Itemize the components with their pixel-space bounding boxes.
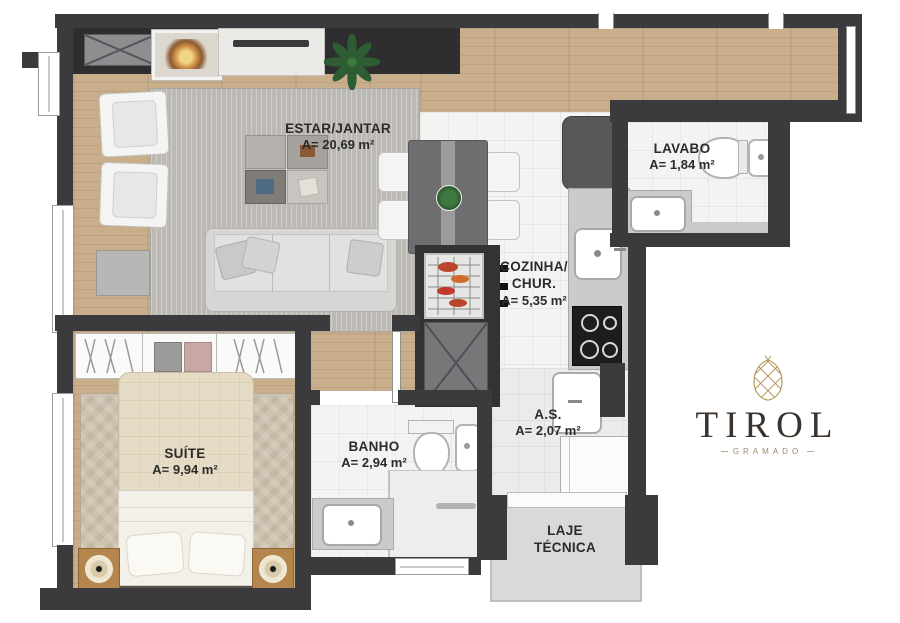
slab-right-stub: [625, 495, 658, 565]
room-area-as: A= 2,07 m²: [492, 423, 604, 440]
left-wall-mid: [57, 331, 73, 393]
bidet-drain: [464, 443, 470, 449]
duvet-fold: [119, 507, 253, 508]
left-niche-window: [38, 52, 60, 116]
dining-table: [408, 140, 488, 254]
table-plant: [436, 185, 462, 211]
lavabo-bottom-wall: [610, 233, 790, 247]
living-suite-wall: [55, 315, 330, 331]
side-table: [96, 250, 150, 296]
fireplace: [152, 30, 222, 80]
service-threshold: [507, 492, 627, 508]
hall-lavabo-wall: [610, 100, 838, 122]
toilet-tank: [738, 140, 748, 174]
bed-duvet: [118, 490, 254, 586]
room-name-lavabo: LAVABO: [630, 140, 734, 157]
bed-pillow: [125, 531, 184, 578]
bidet-drain: [758, 154, 764, 160]
shower-bar: [436, 503, 476, 509]
tv-sideboard: [218, 28, 325, 76]
fireplace-flames: [165, 39, 207, 69]
hanger-clothes-icon: [77, 335, 141, 377]
room-label-as: A.S. A= 2,07 m²: [492, 406, 604, 440]
entrance-opening: [768, 13, 784, 29]
coffee-table-module: [245, 170, 286, 204]
suite-bottom-wall: [40, 588, 311, 610]
bathroom-sink: [322, 504, 382, 546]
sofa-pillow: [346, 239, 384, 277]
sink-faucet: [614, 248, 626, 251]
closet-shaft-box: [84, 34, 156, 66]
sofa-seam: [329, 235, 330, 291]
nightstand-right: [252, 548, 294, 590]
room-label-estar: ESTAR/JANTAR A= 20,69 m²: [268, 120, 408, 154]
tank-faucet: [568, 400, 582, 403]
armchair-cushion: [112, 171, 158, 219]
room-name-suite: SUÍTE: [130, 445, 240, 462]
bathroom-top-wall: [398, 390, 481, 405]
dining-chair: [484, 152, 520, 192]
lavabo-left-wall: [612, 100, 628, 247]
room-label-lavabo: LAVABO A= 1,84 m²: [630, 140, 734, 174]
suite-window: [52, 393, 74, 547]
brand-name: TIROL: [695, 404, 840, 447]
living-corridor-wall: [392, 315, 420, 331]
bathroom-window: [395, 558, 469, 575]
bathroom-top-wall-stub: [311, 390, 320, 405]
lamp: [259, 555, 287, 583]
room-name-estar: ESTAR/JANTAR: [268, 120, 408, 137]
sofa-pillow: [241, 236, 281, 274]
room-area-estar: A= 20,69 m²: [268, 137, 408, 154]
plant-large: [324, 34, 380, 90]
brand-logo: TIROL GRAMADO: [695, 348, 840, 473]
folded-clothes-gray: [154, 342, 182, 372]
sink-drain: [348, 520, 354, 526]
lavabo-sink: [630, 196, 686, 232]
living-window: [52, 205, 74, 333]
dining-chair: [484, 200, 520, 240]
room-label-laje: LAJE TÉCNICA: [528, 522, 602, 557]
barbecue-grill: [424, 253, 484, 319]
lavabo-right-wall: [768, 112, 790, 247]
folded-clothes-pink: [184, 342, 212, 372]
coffee-table-pillow: [298, 176, 320, 197]
room-label-banho: BANHO A= 2,94 m²: [318, 438, 430, 472]
slab-left-stub: [477, 495, 507, 560]
room-label-suite: SUÍTE A= 9,94 m²: [130, 445, 240, 479]
hanger-clothes-icon: [226, 335, 290, 377]
coffee-table-book: [256, 179, 274, 194]
bed-pillow: [188, 531, 247, 577]
room-area-banho: A= 2,94 m²: [318, 455, 430, 472]
lamp: [85, 555, 113, 583]
armchair-cushion: [112, 100, 158, 148]
room-name-as: A.S.: [492, 406, 604, 423]
sink-drain: [594, 250, 601, 257]
room-area-suite: A= 9,94 m²: [130, 462, 240, 479]
room-area-cozinha: A= 5,35 m²: [488, 293, 580, 310]
tv: [233, 40, 309, 47]
armchair-1: [98, 90, 169, 157]
room-name-laje: LAJE TÉCNICA: [528, 522, 602, 557]
wall-opening: [598, 13, 614, 29]
armchair-2: [99, 162, 169, 228]
floor-plan-page: { "plan": { "rooms": { "estar": { "name"…: [0, 0, 900, 623]
room-area-lavabo: A= 1,84 m²: [630, 157, 734, 174]
sink-drain: [654, 210, 660, 216]
pinecone-icon: [746, 348, 790, 404]
lavabo-step: [690, 222, 768, 233]
sofa: [205, 228, 397, 312]
nightstand-left: [78, 548, 120, 590]
duvet-fold: [119, 521, 253, 522]
brand-location: GRAMADO: [695, 447, 840, 456]
coffee-table-module: [287, 170, 328, 204]
room-label-cozinha: COZINHA/ CHUR. A= 5,35 m²: [488, 258, 580, 309]
room-name-banho: BANHO: [318, 438, 430, 455]
entrance-door-leaf: [846, 26, 856, 114]
top-wall: [55, 14, 860, 28]
kitchen-right-wall: [628, 247, 646, 505]
cooktop: [572, 306, 622, 366]
room-name-cozinha: COZINHA/ CHUR.: [488, 258, 580, 293]
shower-box: [388, 470, 479, 559]
